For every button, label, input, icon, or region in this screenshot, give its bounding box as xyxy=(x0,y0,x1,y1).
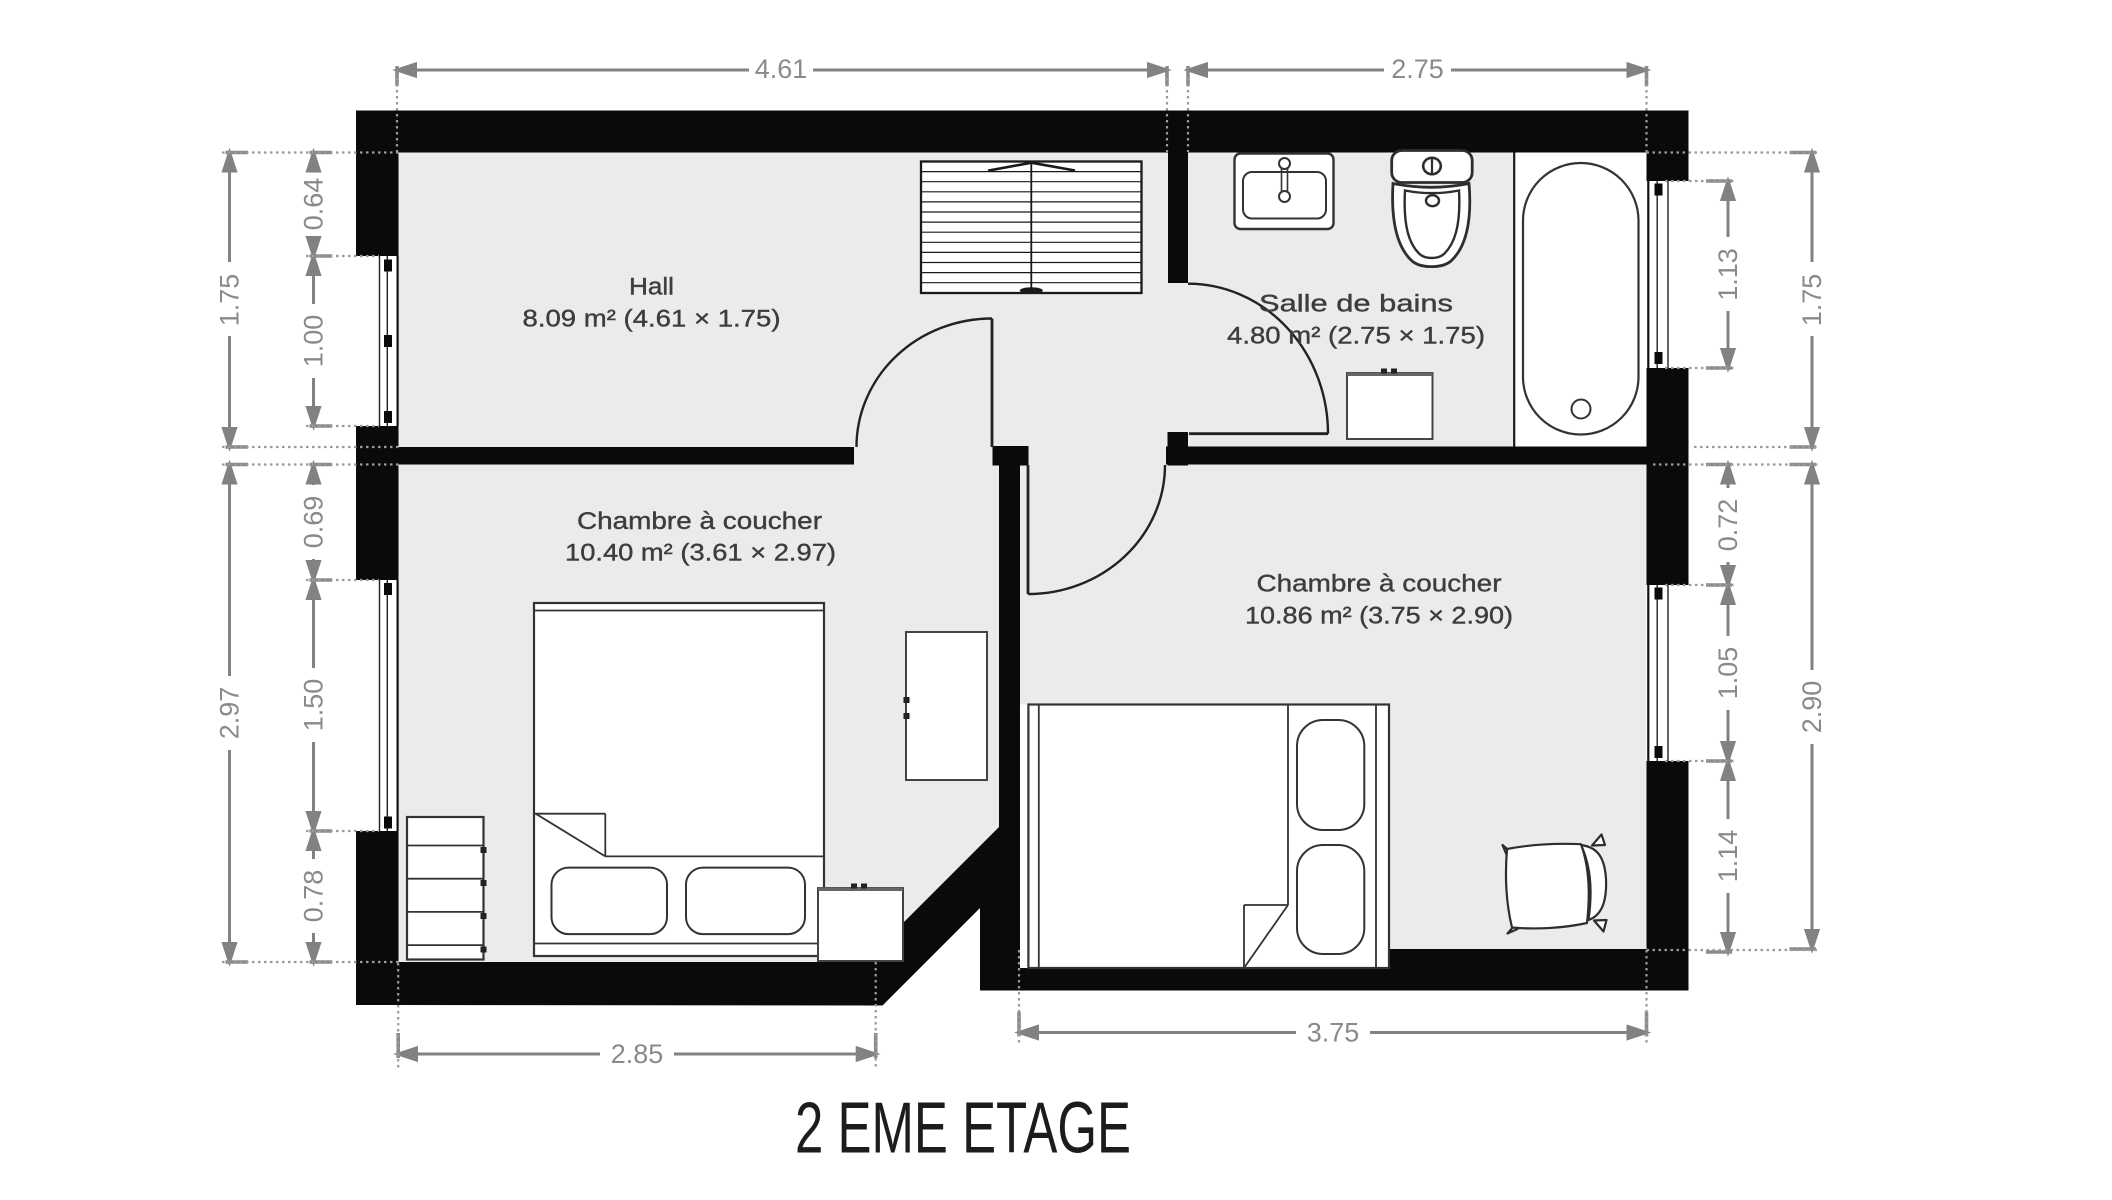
svg-text:10.86 m² (3.75 × 2.90): 10.86 m² (3.75 × 2.90) xyxy=(1245,603,1513,630)
svg-text:2 EME ETAGE: 2 EME ETAGE xyxy=(795,1089,1131,1169)
svg-text:1.50: 1.50 xyxy=(299,679,329,732)
svg-text:8.09 m² (4.61 × 1.75): 8.09 m² (4.61 × 1.75) xyxy=(523,306,781,333)
svg-text:1.13: 1.13 xyxy=(1713,248,1743,301)
svg-text:4.80 m² (2.75 × 1.75): 4.80 m² (2.75 × 1.75) xyxy=(1227,323,1485,350)
svg-text:0.72: 0.72 xyxy=(1713,499,1743,552)
svg-text:1.75: 1.75 xyxy=(1797,274,1827,327)
svg-text:2.97: 2.97 xyxy=(215,687,245,740)
svg-text:1.14: 1.14 xyxy=(1713,830,1743,883)
svg-text:Chambre à coucher: Chambre à coucher xyxy=(1257,571,1502,598)
svg-text:2.75: 2.75 xyxy=(1391,54,1444,84)
svg-text:0.64: 0.64 xyxy=(299,178,329,231)
svg-text:Chambre à coucher: Chambre à coucher xyxy=(577,508,822,535)
svg-text:0.69: 0.69 xyxy=(299,496,329,549)
svg-text:Salle de bains: Salle de bains xyxy=(1259,291,1453,318)
svg-text:10.40 m² (3.61 × 2.97): 10.40 m² (3.61 × 2.97) xyxy=(565,540,836,567)
svg-text:2.85: 2.85 xyxy=(611,1039,664,1069)
svg-text:1.05: 1.05 xyxy=(1713,647,1743,700)
svg-text:0.78: 0.78 xyxy=(299,870,329,923)
svg-text:3.75: 3.75 xyxy=(1307,1018,1360,1048)
svg-text:Hall: Hall xyxy=(629,274,674,301)
svg-text:2.90: 2.90 xyxy=(1797,681,1827,734)
svg-text:4.61: 4.61 xyxy=(755,54,808,84)
svg-text:1.00: 1.00 xyxy=(299,315,329,368)
svg-text:1.75: 1.75 xyxy=(215,274,245,327)
